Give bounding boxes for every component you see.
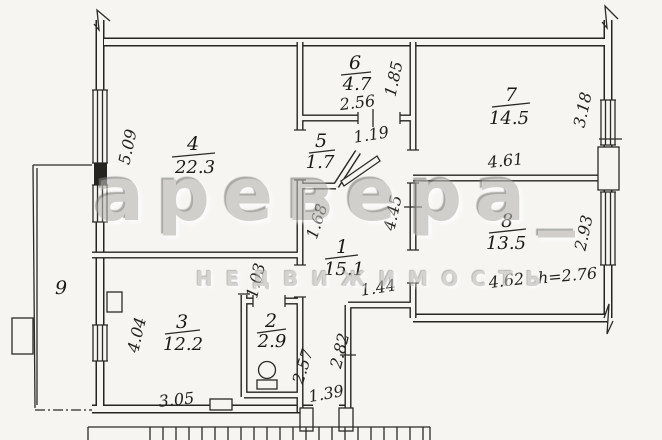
balcony-pilaster [12,318,33,354]
room-1-number: 1 [336,236,348,258]
dim-room7-depth: 3.18 [570,90,596,129]
room3-pilaster [107,292,122,312]
room-labels: 4 22.3 6 4.7 7 14.5 8 13.5 5 1.7 1 15.1 … [55,52,530,355]
room-3-area: 12.2 [163,334,203,355]
dim-hall-right: 4.45 [379,193,405,233]
balcony-outline [12,165,232,410]
dim-hall-step: 1.44 [359,275,397,299]
room-7-area: 14.5 [489,108,529,129]
floorplan-scan: 4 22.3 6 4.7 7 14.5 8 13.5 5 1.7 1 15.1 … [0,0,662,440]
dim-hall-upper: 1.68 [302,201,331,241]
dim-room8-width: 4.62 [486,269,525,292]
room-2-number: 2 [264,310,277,332]
room-5-number: 5 [315,130,327,152]
dim-room3-height: 4.04 [123,315,150,355]
room-1-area: 15.1 [324,259,364,280]
dim-niche-depth: 1.03 [242,261,269,300]
dim-room7-width: 4.61 [486,149,524,172]
window-pier-box [598,147,619,190]
threshold-box [210,399,232,410]
dim-room6-depth: 1.85 [381,59,407,98]
room-8-area: 13.5 [486,233,526,254]
dim-ceiling-height: h=2.76 [537,263,598,287]
room-3-number: 3 [176,311,188,333]
room-4-area: 22.3 [174,157,215,178]
room-7-number: 7 [505,84,518,106]
toilet-icon [257,362,277,390]
room-8-number: 8 [501,210,513,232]
dim-room6-width: 2.56 [337,91,376,114]
dim-corridor-left: 2.57 [288,346,317,387]
room-6-number: 6 [349,52,361,74]
dim-room4-height: 5.09 [115,127,141,166]
window-pier-fill [94,163,107,185]
floor-plan-drawing: 4 22.3 6 4.7 7 14.5 8 13.5 5 1.7 1 15.1 … [0,0,662,440]
dim-passage-width: 1.19 [352,122,390,146]
dim-entry-width: 1.39 [307,381,345,406]
room-4-number: 4 [186,133,199,155]
dim-room8-depth: 2.93 [570,213,596,253]
room-2-area: 2.9 [257,331,287,352]
room-5-area: 1.7 [306,152,335,173]
room-9-number: 9 [55,277,67,299]
dim-room3-width: 3.05 [158,388,195,411]
stairwell-hatch [88,427,430,440]
